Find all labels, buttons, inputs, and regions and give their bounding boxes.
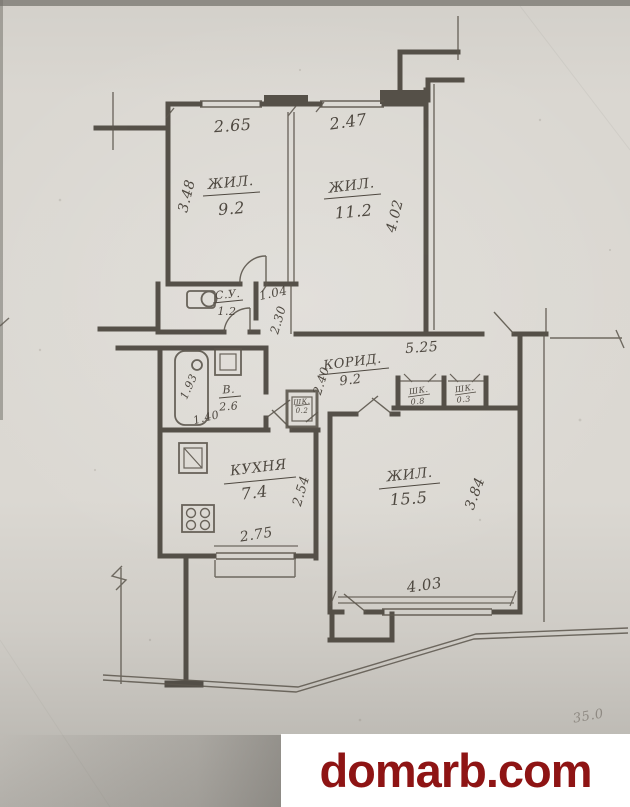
watermark-panel: domarb.com bbox=[281, 734, 630, 807]
wc-area: 1.2 bbox=[218, 305, 237, 318]
corridor-area: 9.2 bbox=[339, 372, 363, 390]
living3-area: 15.5 bbox=[389, 488, 428, 510]
pencil-note: 35.0 bbox=[572, 706, 605, 726]
bathroom-width-dim: 1.40 bbox=[192, 408, 221, 427]
living2-width-dim: 2.47 bbox=[327, 109, 368, 133]
dimension-lines bbox=[214, 546, 516, 606]
watermark-text: domarb.com bbox=[319, 747, 591, 794]
kitchen-label: КУХНЯ bbox=[228, 457, 288, 480]
kitchen-width-dim: 2.75 bbox=[238, 525, 274, 546]
kitchen-area: 7.4 bbox=[240, 481, 269, 503]
corridor-width-dim: 5.25 bbox=[405, 339, 439, 357]
living1-area: 9.2 bbox=[217, 198, 246, 219]
living1-height-dim: 3.48 bbox=[175, 178, 199, 214]
living2-area: 11.2 bbox=[334, 200, 373, 222]
bathroom-label: В. bbox=[221, 383, 235, 397]
closet2-area: 0.3 bbox=[456, 394, 471, 404]
living1-label: ЖИЛ. bbox=[206, 173, 254, 193]
closet1-area: 0.8 bbox=[410, 396, 425, 406]
hall-depth-dim: 2.30 bbox=[267, 304, 289, 336]
wc-label: С.У. bbox=[214, 287, 240, 302]
floor-plan-drawing: ЖИЛ. 9.2 2.65 3.48 ЖИЛ. 11.2 2.47 4.02 С… bbox=[0, 0, 630, 807]
stove-fixture bbox=[182, 505, 214, 532]
kitchen-height-dim: 2.54 bbox=[290, 474, 313, 509]
corridor-height-dim: 2.40 bbox=[310, 365, 332, 398]
living1-width-dim: 2.65 bbox=[212, 115, 252, 137]
washbasin-fixture bbox=[215, 349, 241, 375]
kitchen-sink-fixture bbox=[179, 443, 207, 473]
living3-label: ЖИЛ. bbox=[385, 465, 433, 486]
scanned-floorplan-photo: ЖИЛ. 9.2 2.65 3.48 ЖИЛ. 11.2 2.47 4.02 С… bbox=[0, 0, 630, 807]
living2-height-dim: 4.02 bbox=[383, 198, 407, 235]
bathroom-height-dim: 1.93 bbox=[177, 372, 200, 401]
toilet-fixture bbox=[187, 291, 217, 308]
living3-height-dim: 3.84 bbox=[462, 475, 488, 512]
living2-label: ЖИЛ. bbox=[327, 175, 376, 197]
living3-width-dim: 4.03 bbox=[405, 574, 444, 597]
bathroom-area: 2.6 bbox=[218, 399, 239, 413]
closet3-area: 0.2 bbox=[296, 407, 309, 415]
door-width-dim: 1.04 bbox=[258, 283, 289, 303]
